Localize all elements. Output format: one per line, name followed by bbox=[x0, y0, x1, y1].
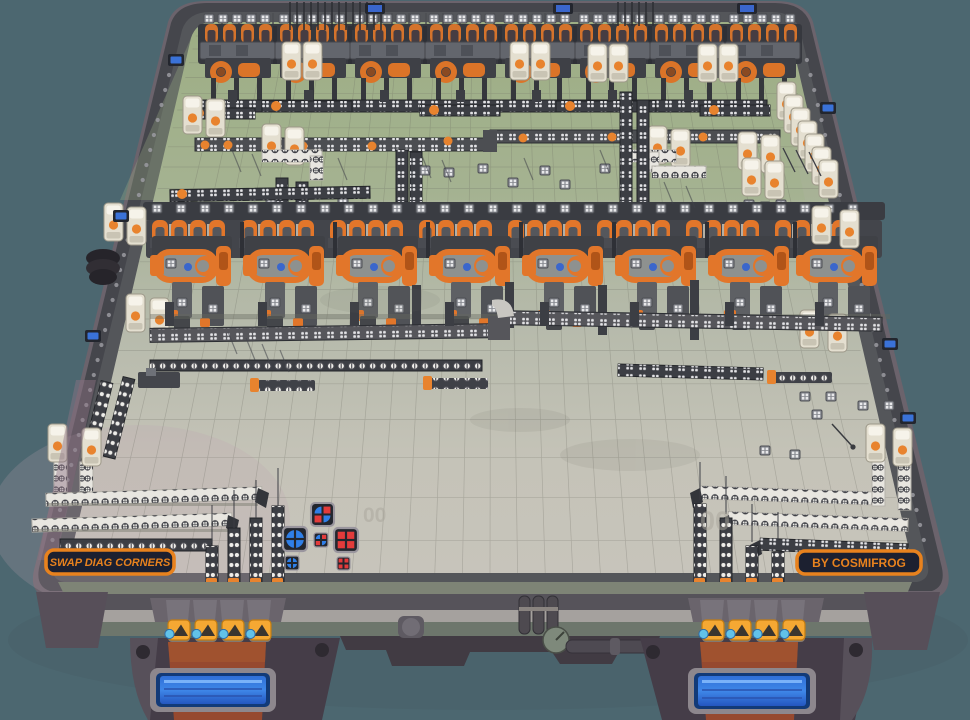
svg-text:SWAP DIAG CORNERS: SWAP DIAG CORNERS bbox=[50, 557, 171, 569]
svg-text:00: 00 bbox=[700, 506, 730, 536]
svg-text:BY COSMIFROG: BY COSMIFROG bbox=[812, 556, 906, 570]
svg-text:00: 00 bbox=[363, 504, 386, 527]
